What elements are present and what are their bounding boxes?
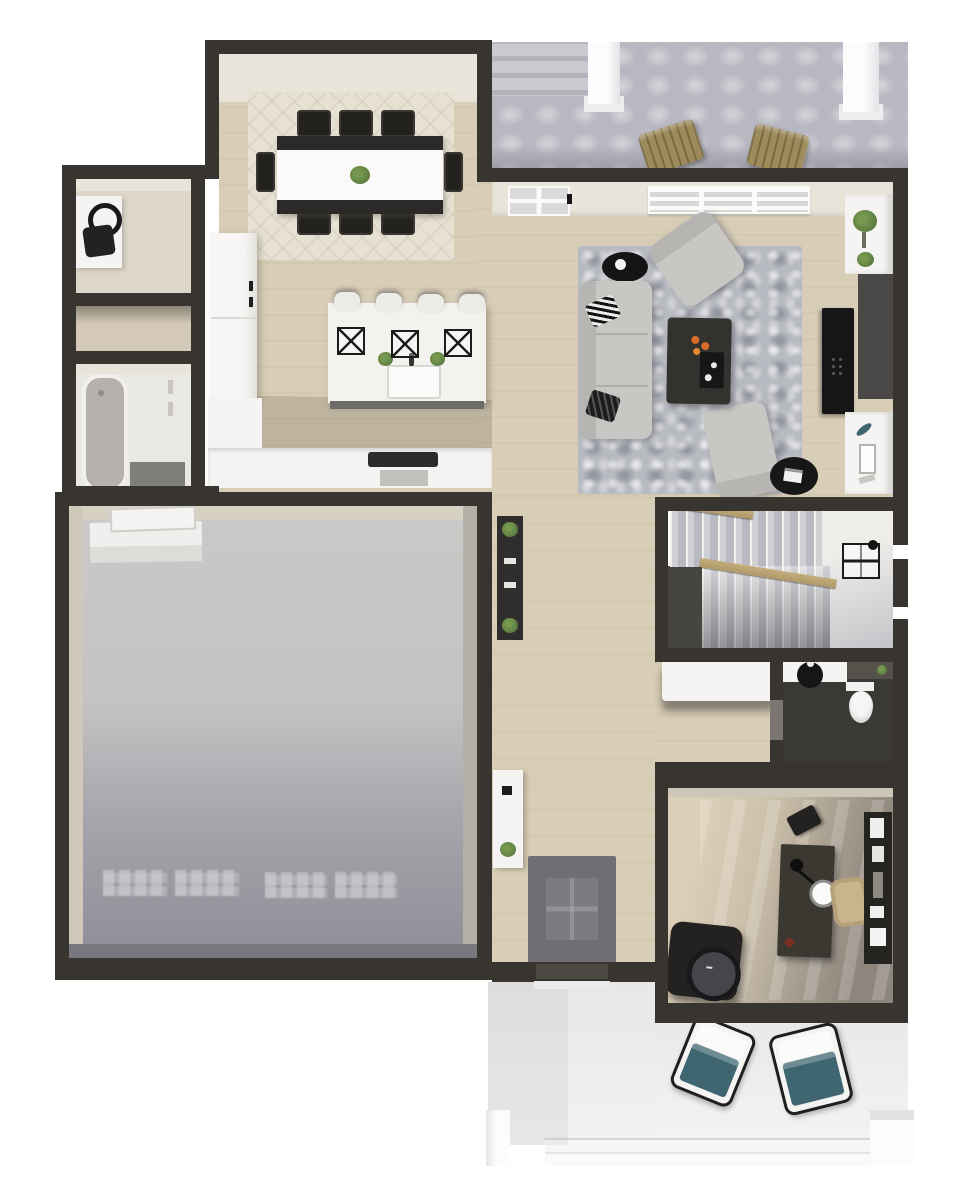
bathtub [82, 374, 128, 492]
dining-table-end-dark [277, 136, 443, 150]
office-lounge-chair [664, 920, 743, 1001]
office-inner-wall [668, 788, 893, 797]
entry-rug [528, 856, 616, 966]
deck-column-left [588, 42, 620, 104]
powder-side-counter [847, 661, 893, 679]
cage-pendant-light [444, 329, 472, 357]
bar-stool [459, 294, 485, 313]
island-base-shadow [330, 401, 484, 409]
cage-pendant-light [337, 327, 365, 355]
kitchen-tall-cabinets-refrigerator [211, 233, 257, 403]
window-mullion [752, 188, 757, 212]
stairwell-void [668, 566, 702, 648]
table-lamp [615, 259, 626, 270]
wall-stairs-top [655, 497, 908, 511]
console-decor [504, 582, 516, 588]
powder-door-gap [770, 700, 783, 740]
desk-red-accent [784, 937, 795, 948]
plant-stand [862, 232, 866, 248]
dining-chair [381, 110, 415, 137]
wall-dining-left [205, 40, 219, 179]
flat-screen-tv [822, 308, 854, 414]
tray-decor [705, 374, 712, 381]
front-door-threshold [534, 981, 610, 989]
wall-wing-divider-1 [76, 293, 191, 306]
cabinet-divider-line [211, 317, 257, 319]
dining-table [277, 136, 443, 214]
dining-chair [339, 110, 373, 137]
kitchen-bottom-counter [208, 448, 492, 488]
porch-post-left [486, 1110, 510, 1166]
cubby-decor-ball [868, 540, 878, 550]
console-decor [504, 558, 516, 564]
front-porch-slab-left [488, 982, 655, 1145]
bathroom-inner-wall [76, 364, 191, 374]
wall-garage-bottom [55, 958, 492, 980]
mudroom-bench [662, 659, 774, 701]
console-plant [502, 522, 518, 537]
window-mullion [699, 188, 704, 212]
range-cooktop [368, 452, 438, 467]
sofa [580, 281, 652, 439]
island-herb-plant [430, 352, 445, 366]
wall-wing-left [62, 165, 76, 500]
living-transom-vent [508, 186, 570, 216]
porch-post-right [870, 1110, 914, 1166]
sofa-side-table [602, 252, 648, 282]
refrigerator-handle [249, 297, 253, 307]
entry-console-table [493, 770, 523, 868]
dining-chair-end [256, 152, 275, 192]
shelf-book [870, 818, 884, 838]
right-wall-door-gap [893, 545, 908, 559]
laundry-inner-wall [76, 179, 191, 191]
wall-garage-right [477, 492, 492, 980]
decor-feather [855, 421, 873, 438]
hall-console-table [497, 516, 523, 640]
farmhouse-sink [387, 365, 441, 399]
wall-wing-top [62, 165, 219, 179]
powder-vessel-sink [797, 662, 823, 688]
shelf-vase [873, 872, 883, 898]
lounge-round-cushion [684, 944, 743, 1003]
builtin-cabinet-decor [845, 412, 893, 494]
wall-right-exterior [893, 168, 908, 1020]
vent-handle [567, 194, 572, 204]
living-window-band [648, 186, 810, 214]
bar-stool [334, 292, 360, 311]
sofa-cushion-line [596, 333, 648, 335]
wall-stairs-left [655, 497, 668, 662]
decor-remote [858, 474, 875, 484]
ottoman-magazine [783, 468, 803, 483]
garage-door-reflection-4 [335, 872, 397, 898]
floor-plan-render [0, 0, 974, 1200]
shelf-book [870, 928, 886, 946]
bar-stool [418, 294, 444, 313]
shelf-book [872, 846, 884, 862]
wall-wing-divider-2 [76, 351, 191, 364]
sofa-cushion-line [596, 385, 648, 387]
towel-bar [168, 380, 173, 394]
deck-column-right [843, 42, 879, 112]
decor-tablet [859, 444, 876, 474]
dining-table-end-dark [277, 200, 443, 214]
candle [691, 336, 699, 344]
rug-window-reflection [546, 878, 598, 940]
tub-drain [98, 390, 104, 396]
tray-decor [711, 362, 717, 368]
front-door [536, 964, 608, 979]
entry-console-decor [502, 786, 512, 795]
garage-door-reflection-2 [175, 870, 239, 896]
bar-stool [376, 293, 402, 312]
candle [693, 348, 700, 355]
entry-console-plant [500, 842, 516, 857]
powder-soap-plant [877, 665, 887, 675]
wall-office-top [655, 762, 908, 788]
wall-office-bottom [655, 1003, 908, 1023]
garage-attic-hatch [110, 506, 197, 533]
wall-garage-top [55, 492, 492, 506]
dining-centerpiece-plant [350, 166, 370, 184]
garage-door-reflection-3 [265, 872, 327, 898]
potted-plant [853, 210, 877, 232]
office-desk [777, 844, 835, 958]
candle [701, 342, 709, 350]
toilet-tank [846, 682, 874, 691]
wall-wing-right [191, 179, 205, 500]
kitchen-corner-counter [208, 398, 262, 452]
towel-bar [168, 402, 173, 416]
closet-floor [76, 306, 191, 351]
console-plant [502, 618, 518, 633]
coffee-table-tray [700, 352, 725, 388]
wall-dining-right [477, 40, 492, 182]
cage-pendant-light [391, 330, 419, 358]
wall-dining-top [205, 40, 492, 54]
dining-chair-end [444, 152, 463, 192]
tv-speaker-dots [830, 356, 844, 378]
shelf-book [870, 906, 884, 918]
fireplace-surround [858, 271, 894, 399]
deck-steps [492, 44, 588, 96]
garage-inner-wall-left [69, 506, 83, 958]
wall-garage-left [55, 492, 69, 980]
garage-door-reflection-1 [103, 870, 167, 896]
garage-inner-wall-bottom [69, 944, 477, 958]
builtin-cabinet-plant [845, 194, 893, 274]
potted-plant-small [857, 252, 874, 267]
right-wall-door-gap [893, 607, 908, 619]
wall-living-top [492, 168, 908, 182]
laundry-dark-fixture [82, 224, 116, 258]
porch-steps [545, 1138, 875, 1166]
dining-chair [297, 110, 331, 137]
coffee-table [666, 317, 731, 404]
dishwasher-front [380, 470, 428, 486]
refrigerator-handle [249, 281, 253, 291]
garage-inner-wall-right [463, 506, 477, 958]
office-bookshelf [864, 812, 892, 964]
round-ottoman [770, 457, 818, 495]
